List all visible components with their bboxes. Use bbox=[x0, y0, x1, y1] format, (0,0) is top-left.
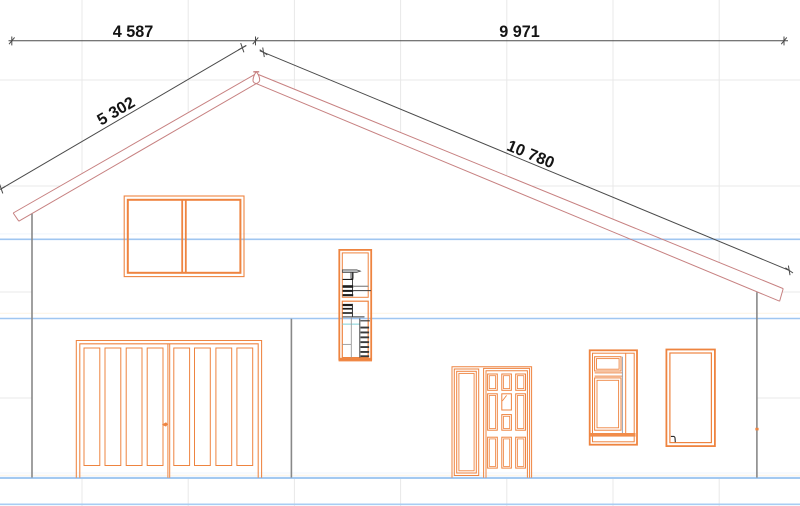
svg-text:9 971: 9 971 bbox=[499, 23, 540, 41]
svg-text:4 587: 4 587 bbox=[113, 23, 154, 41]
